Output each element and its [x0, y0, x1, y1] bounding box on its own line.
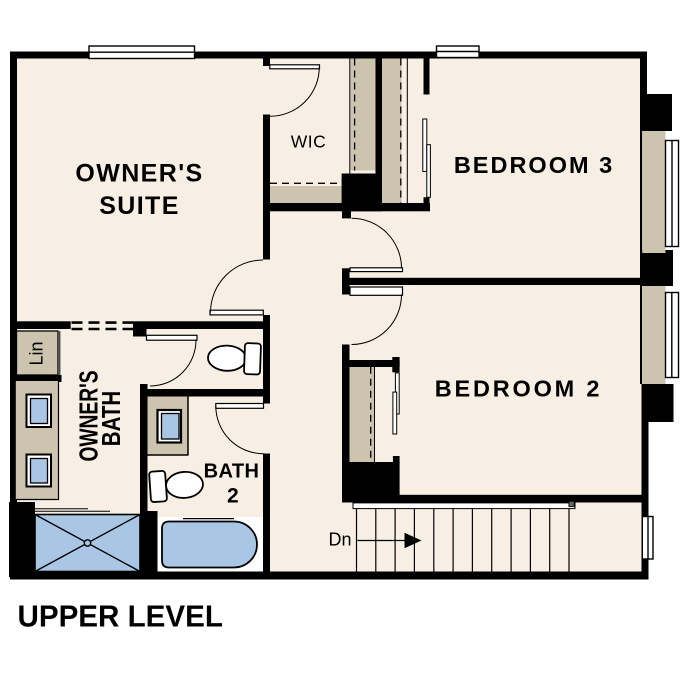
- svg-text:SUITE: SUITE: [99, 192, 180, 220]
- svg-text:OWNER'S: OWNER'S: [75, 160, 203, 188]
- svg-text:WIC: WIC: [291, 132, 327, 152]
- svg-text:BATH: BATH: [204, 461, 260, 483]
- svg-text:BEDROOM 3: BEDROOM 3: [454, 152, 614, 178]
- svg-text:BATH: BATH: [96, 391, 125, 446]
- svg-text:Lin: Lin: [27, 341, 47, 365]
- svg-text:Dn: Dn: [329, 530, 352, 550]
- svg-text:BEDROOM 2: BEDROOM 2: [435, 376, 603, 402]
- svg-text:UPPER LEVEL: UPPER LEVEL: [18, 600, 223, 633]
- svg-text:2: 2: [227, 485, 239, 508]
